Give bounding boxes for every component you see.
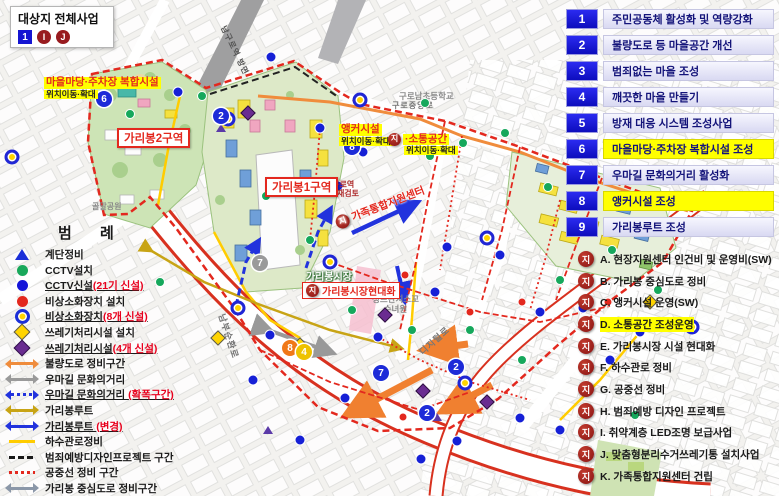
legend-row: 가리봉루트	[6, 405, 220, 416]
garibong-route-arrow-icon	[11, 409, 33, 412]
map-marker-red	[518, 298, 527, 307]
map-marker-green	[458, 138, 468, 148]
ji-badge: 지	[578, 316, 594, 332]
title-box: 대상지 전체사업 1 I J	[10, 6, 114, 48]
sub-project-label: I. 취약계층 LED조명 보급사업	[600, 425, 732, 440]
cctv-existing-icon	[17, 265, 28, 276]
label-park: 골말공원	[92, 202, 121, 211]
sub-project-row: 지B. 가리봉 중심도로 정비	[578, 273, 706, 289]
project-number: 8	[566, 191, 598, 211]
label-market: 가리봉시장	[306, 268, 352, 283]
legend-row: 가리봉루트 (변경)	[6, 421, 220, 432]
map-marker-blue	[535, 307, 546, 318]
project-row: 7우마길 문화의거리 활성화	[566, 165, 774, 185]
sub-project-label: K. 가족통합지원센터 건립	[600, 469, 713, 484]
sub-project-row: 지I. 취약계층 LED조명 보급사업	[578, 424, 732, 440]
map-marker-blue	[515, 413, 526, 424]
sub-project-label: E. 가리봉시장 시설 현대화	[600, 339, 715, 354]
sub-project-row: 지E. 가리봉시장 시설 현대화	[578, 338, 715, 354]
label-anchor-title: 앵커시설	[339, 124, 382, 136]
legend-row: 쓰레기처리시설 설치	[6, 327, 220, 338]
map-marker-blue	[495, 250, 506, 261]
map-marker-yring	[231, 301, 246, 316]
sub-project-row: 지K. 가족통합지원센터 건립	[578, 468, 713, 484]
legend-row: 계단정비	[6, 249, 220, 260]
legend-row: 범죄예방디자인프로젝트 구간	[6, 452, 220, 463]
ji-badge: 지	[578, 403, 594, 419]
sub-project-label: A. 현장지원센터 인건비 및 운영비(SW)	[600, 252, 772, 267]
page-title: 대상지 전체사업	[18, 10, 106, 27]
map-marker-red	[466, 308, 475, 317]
legend-row: 우마길 문화의거리	[6, 374, 220, 385]
project-row: 6마을마당·주차장 복합시설 조성	[566, 139, 774, 159]
project-row: 2불량도로 등 마을공간 개선	[566, 35, 774, 55]
fire-device-icon	[17, 296, 28, 307]
map-marker-red	[401, 271, 410, 280]
map-marker-green	[500, 128, 510, 138]
project-label: 마을마당·주차장 복합시설 조성	[603, 139, 774, 159]
map-marker-green	[197, 91, 207, 101]
ji-badge: 지	[578, 251, 594, 267]
map-marker-blue	[173, 87, 184, 98]
sub-project-label: C. 앵커시설 운영(SW)	[600, 295, 698, 310]
sub-project-label: G. 공중선 정비	[600, 382, 665, 397]
map-marker-blue	[266, 52, 277, 63]
map-marker-green	[407, 325, 417, 335]
label-garibong2-zone: 가리봉2구역	[117, 128, 190, 148]
sub-project-label: J. 맞춤형분리수거쓰레기통 설치사업	[600, 447, 760, 462]
label-garibong1-zone: 가리봉1구역	[265, 177, 338, 197]
umagil-widen-arrow-icon	[11, 393, 33, 396]
label-anchor: 앵커시설 위치이동·확대	[339, 119, 393, 146]
legend-row: 불량도로 정비구간	[6, 358, 220, 369]
map-number-badge: 2	[448, 359, 464, 375]
sub-project-label: B. 가리봉 중심도로 정비	[600, 274, 706, 289]
sub-project-row: 지G. 공중선 정비	[578, 381, 665, 397]
project-row: 1주민공동체 활성화 및 역량강화	[566, 9, 774, 29]
umagil-arrow-icon	[11, 378, 33, 381]
project-map-page: 628784722 마을마당·주차장 복합시설 위치이동·확대 앵커시설 위치이…	[0, 0, 779, 496]
map-marker-blue	[373, 332, 384, 343]
waste-facility-icon	[14, 324, 31, 341]
ji-badge: 지	[578, 359, 594, 375]
project-label: 깨끗한 마을 만들기	[603, 87, 774, 107]
project-number: 3	[566, 61, 598, 81]
legend: 범 례 계단정비 CCTV설치 CCTV신설(21기 신설) 비상소화장치 설치…	[6, 222, 220, 496]
map-marker-blue	[340, 393, 351, 404]
sub-project-label: F. 하수관로 정비	[600, 360, 672, 375]
sub-project-row: 지C. 앵커시설 운영(SW)	[578, 294, 698, 310]
map-number-badge: 4	[296, 344, 312, 360]
map-marker-blue	[295, 435, 306, 446]
map-marker-blue	[416, 454, 427, 465]
map-marker-yring	[480, 231, 495, 246]
ji-badge: 지	[578, 468, 594, 484]
project-number: 9	[566, 217, 598, 237]
map-marker-green	[420, 98, 430, 108]
cctv-new-icon	[17, 280, 28, 291]
map-marker-blue	[452, 436, 463, 447]
legend-row: 가리봉 중심도로 정비구간	[6, 483, 220, 494]
project-number: 7	[566, 165, 598, 185]
map-number-badge: 2	[419, 405, 435, 421]
map-number-badge: 7	[373, 365, 389, 381]
title-circle-mark-i: I	[37, 30, 51, 44]
ji-badge: 지	[578, 294, 594, 310]
project-label: 주민공동체 활성화 및 역량강화	[603, 9, 774, 29]
project-number: 5	[566, 113, 598, 133]
project-row: 3범죄없는 마을 조성	[566, 61, 774, 81]
label-sotong-title: ·소통공간	[403, 134, 449, 146]
project-label: 범죄없는 마을 조성	[603, 61, 774, 81]
sub-project-row: 지A. 현장지원센터 인건비 및 운영비(SW)	[578, 251, 772, 267]
map-marker-yring	[353, 93, 368, 108]
project-number: 2	[566, 35, 598, 55]
project-label: 불량도로 등 마을공간 개선	[603, 35, 774, 55]
legend-row: 비상소화장치(8개 신설)	[6, 311, 220, 322]
map-marker-tri	[216, 124, 226, 132]
project-row: 5방재 대응 시스템 조성사업	[566, 113, 774, 133]
central-road-arrow-icon	[11, 487, 33, 490]
map-marker-tri	[263, 426, 273, 434]
map-marker-yring	[458, 376, 473, 391]
cpted-line-icon	[9, 456, 35, 459]
label-village-hall: 마을마당·주차장 복합시설 위치이동·확대	[44, 72, 161, 99]
project-number: 4	[566, 87, 598, 107]
project-label: 앵커시설 조성	[603, 191, 774, 211]
project-row: 4깨끗한 마을 만들기	[566, 87, 774, 107]
sub-project-label: H. 범죄예방 디자인 프로젝트	[600, 404, 726, 419]
sub-project-row: 지D. 소통공간 조성운영	[578, 316, 694, 332]
label-anchor-sub: 위치이동·확대	[339, 137, 393, 146]
legend-row: 쓰레기처리시설(4개 신설)	[6, 343, 220, 354]
ji-badge: 지	[578, 424, 594, 440]
map-marker-green	[555, 275, 565, 285]
overhead-line-icon	[9, 471, 35, 474]
label-sotong: 지 ·소통공간 위치이동·확대	[388, 133, 458, 155]
project-label: 가리봉루트 조성	[603, 217, 774, 237]
legend-row: 하수관로정비	[6, 436, 220, 447]
ji-badge: 지	[578, 381, 594, 397]
project-label: 방재 대응 시스템 조성사업	[603, 113, 774, 133]
map-marker-green	[465, 325, 475, 335]
legend-row: 비상소화장치 설치	[6, 296, 220, 307]
sub-project-label: D. 소통공간 조성운영	[600, 317, 694, 332]
title-circle-mark-j: J	[56, 30, 70, 44]
map-marker-green	[305, 235, 315, 245]
ji-badge: 지	[578, 273, 594, 289]
legend-title: 범 례	[58, 222, 220, 243]
fire-device-new-icon	[15, 309, 30, 324]
waste-facility-new-icon	[14, 340, 31, 357]
sub-project-row: 지J. 맞춤형분리수거쓰레기통 설치사업	[578, 446, 760, 462]
map-marker-green	[517, 355, 527, 365]
garibong-route-changed-arrow-icon	[11, 425, 33, 428]
label-village-hall-sub: 위치이동·확대	[44, 90, 98, 99]
title-number-mark: 1	[18, 30, 32, 44]
map-marker-green	[347, 305, 357, 315]
ji-badge: 지	[578, 338, 594, 354]
sub-project-row: 지F. 하수관로 정비	[578, 359, 672, 375]
legend-row: 공중선 정비 구간	[6, 467, 220, 478]
legend-row: 우마길 문화의거리 (확폭구간)	[6, 389, 220, 400]
map-marker-blue	[555, 425, 566, 436]
legend-row: CCTV설치	[6, 265, 220, 276]
sub-project-row: 지H. 범죄예방 디자인 프로젝트	[578, 403, 726, 419]
map-marker-blue	[442, 242, 453, 253]
ji-badge: 지	[578, 446, 594, 462]
label-sotong-sub: 위치이동·확대	[404, 146, 458, 155]
map-marker-green	[125, 109, 135, 119]
map-marker-green	[543, 182, 553, 192]
map-marker-blue	[430, 287, 441, 298]
label-market-modernization-text: 가리봉시장현대화	[322, 283, 396, 298]
project-row: 8앵커시설 조성	[566, 191, 774, 211]
map-number-badge: 2	[213, 108, 229, 124]
project-number: 6	[566, 139, 598, 159]
project-number: 1	[566, 9, 598, 29]
map-marker-blue	[265, 330, 276, 341]
ji-badge: 지	[388, 133, 401, 146]
map-marker-yring	[5, 150, 20, 165]
sewer-line-icon	[9, 440, 35, 443]
map-number-badge: 7	[252, 255, 268, 271]
project-label: 우마길 문화의거리 활성화	[603, 165, 774, 185]
bad-road-arrow-icon	[11, 362, 33, 365]
ji-badge: 지	[306, 284, 319, 297]
label-village-hall-title: 마을마당·주차장 복합시설	[44, 77, 161, 89]
map-marker-blue	[248, 375, 259, 386]
stairs-icon	[15, 249, 29, 260]
map-marker-blue	[315, 123, 326, 134]
map-marker-red	[399, 413, 408, 422]
legend-row: CCTV신설(21기 신설)	[6, 280, 220, 291]
label-market-modernization: 지 가리봉시장현대화	[302, 282, 400, 299]
project-row: 9가리봉루트 조성	[566, 217, 774, 237]
